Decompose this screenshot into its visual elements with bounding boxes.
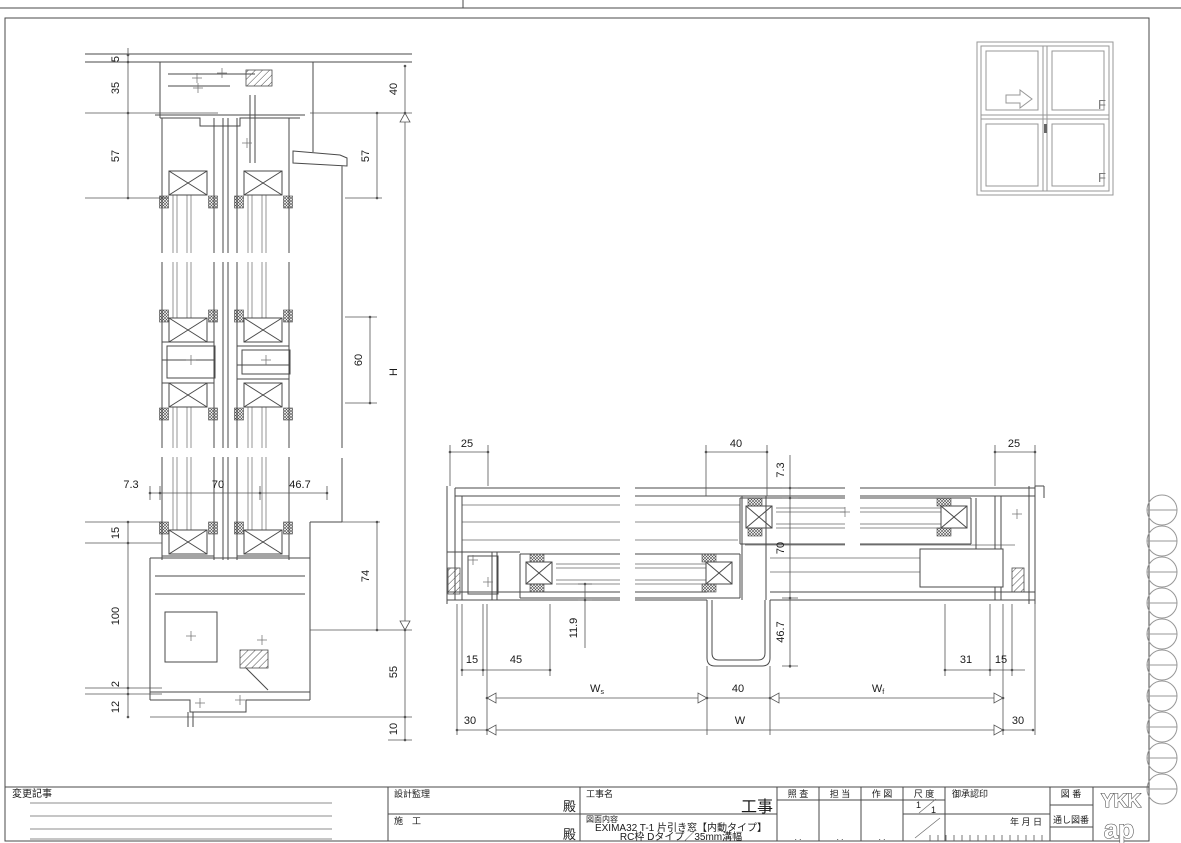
dim-40-bottom: 40: [732, 683, 744, 695]
dim-10: 10: [388, 723, 400, 735]
cell-dots-3: . .: [879, 833, 886, 842]
cad-canvas: 5 35 57 15 100 2 12 7.3 70 46.7 40 57 60…: [0, 0, 1181, 843]
dim-55: 55: [388, 666, 400, 678]
fix-label-top: F: [1098, 97, 1106, 112]
cell-dots-1: . .: [795, 833, 802, 842]
dim-w: W: [735, 715, 746, 727]
title-block: 変更記事 設計監理 殿 施 工 殿 工事名 工事 図面内容 EXIMA32 T-…: [5, 787, 1149, 843]
construction-label: 施 工: [394, 815, 421, 826]
drawing-sheet: 5 35 57 15 100 2 12 7.3 70 46.7 40 57 60…: [0, 0, 1181, 843]
dim-100: 100: [110, 607, 122, 625]
ykk-logo-bottom: ap: [1104, 814, 1134, 843]
dono-1: 殿: [563, 799, 576, 814]
meeting-stile-box: [707, 600, 770, 666]
drawing-no-label: 図 番: [1061, 788, 1082, 799]
left-jamb-chamber: [468, 556, 498, 594]
right-jamb-hatch: [1012, 568, 1024, 592]
dim-2: 2: [110, 681, 122, 687]
dim-46.7-hs: 46.7: [775, 621, 787, 642]
project-suffix: 工事: [741, 798, 773, 816]
dim-35: 35: [110, 82, 122, 94]
dim-15-bottom-left: 15: [466, 654, 478, 666]
dim-30-left: 30: [464, 715, 476, 727]
dim-30-right: 30: [1012, 715, 1024, 727]
window-elevation: F F: [977, 42, 1113, 195]
scale-ruler-ticks: [930, 835, 1042, 841]
dim-5: 5: [110, 56, 122, 62]
dim-60: 60: [353, 354, 365, 366]
dim-70-vs: 70: [212, 479, 224, 491]
dim-40-top: 40: [730, 438, 742, 450]
handle-mark: [1044, 124, 1047, 133]
dim-ws: Ws: [590, 683, 604, 696]
serial-no-label: 通し図番: [1053, 814, 1089, 825]
right-jamb-pocket: [920, 549, 1003, 587]
head-anchor-hatch: [246, 70, 272, 86]
dono-2: 殿: [563, 827, 576, 842]
dim-57-right: 57: [360, 150, 372, 162]
dim-15: 15: [110, 527, 122, 539]
dimension-dots: [127, 54, 1037, 742]
fix-label-bottom: F: [1098, 170, 1106, 185]
dim-40-right: 40: [388, 83, 400, 95]
left-jamb-hatch: [448, 568, 460, 594]
scale-denominator: 1: [931, 805, 936, 815]
revision-circles: [1147, 495, 1177, 804]
date-label: 年 月 日: [1010, 816, 1042, 827]
dim-31: 31: [960, 654, 972, 666]
approval-label: 御承認印: [952, 788, 988, 799]
dim-70-hs: 70: [775, 542, 787, 554]
cell-dots-2: . .: [837, 833, 844, 842]
dim-45: 45: [510, 654, 522, 666]
dim-12: 12: [110, 701, 122, 713]
drafting-label: 作 図: [872, 788, 893, 799]
drawing-content-line2: RC枠 Dタイプ／35mm溝幅: [620, 830, 742, 843]
sill-anchor-hatch: [240, 650, 268, 668]
dim-11.9: 11.9: [568, 618, 580, 639]
scale-label: 尺 度: [914, 788, 935, 799]
project-name-label: 工事名: [586, 788, 613, 799]
dim-46.7-vs: 46.7: [289, 479, 310, 491]
slide-direction-arrow-icon: [1006, 90, 1032, 108]
dim-25-left: 25: [461, 438, 473, 450]
dim-7.3-hs: 7.3: [775, 462, 787, 477]
check-label: 照 査: [788, 788, 809, 799]
dim-wf: Wf: [872, 683, 884, 696]
dim-7.3-vs: 7.3: [123, 479, 138, 491]
in-charge-label: 担 当: [830, 788, 851, 799]
dim-25-right: 25: [1008, 438, 1020, 450]
dim-57-left: 57: [110, 150, 122, 162]
scale-numerator: 1: [916, 800, 921, 810]
dim-74: 74: [360, 570, 372, 582]
change-notes-label: 変更記事: [12, 787, 52, 800]
ykk-logo-top: YKK: [1101, 791, 1141, 812]
dim-H: H: [388, 368, 400, 376]
vertical-section-dimensions: 5 35 57 15 100 2 12 7.3 70 46.7 40 57 60…: [85, 48, 412, 740]
design-supervision-label: 設計監理: [394, 788, 430, 799]
dim-15-bottom-right: 15: [995, 654, 1007, 666]
